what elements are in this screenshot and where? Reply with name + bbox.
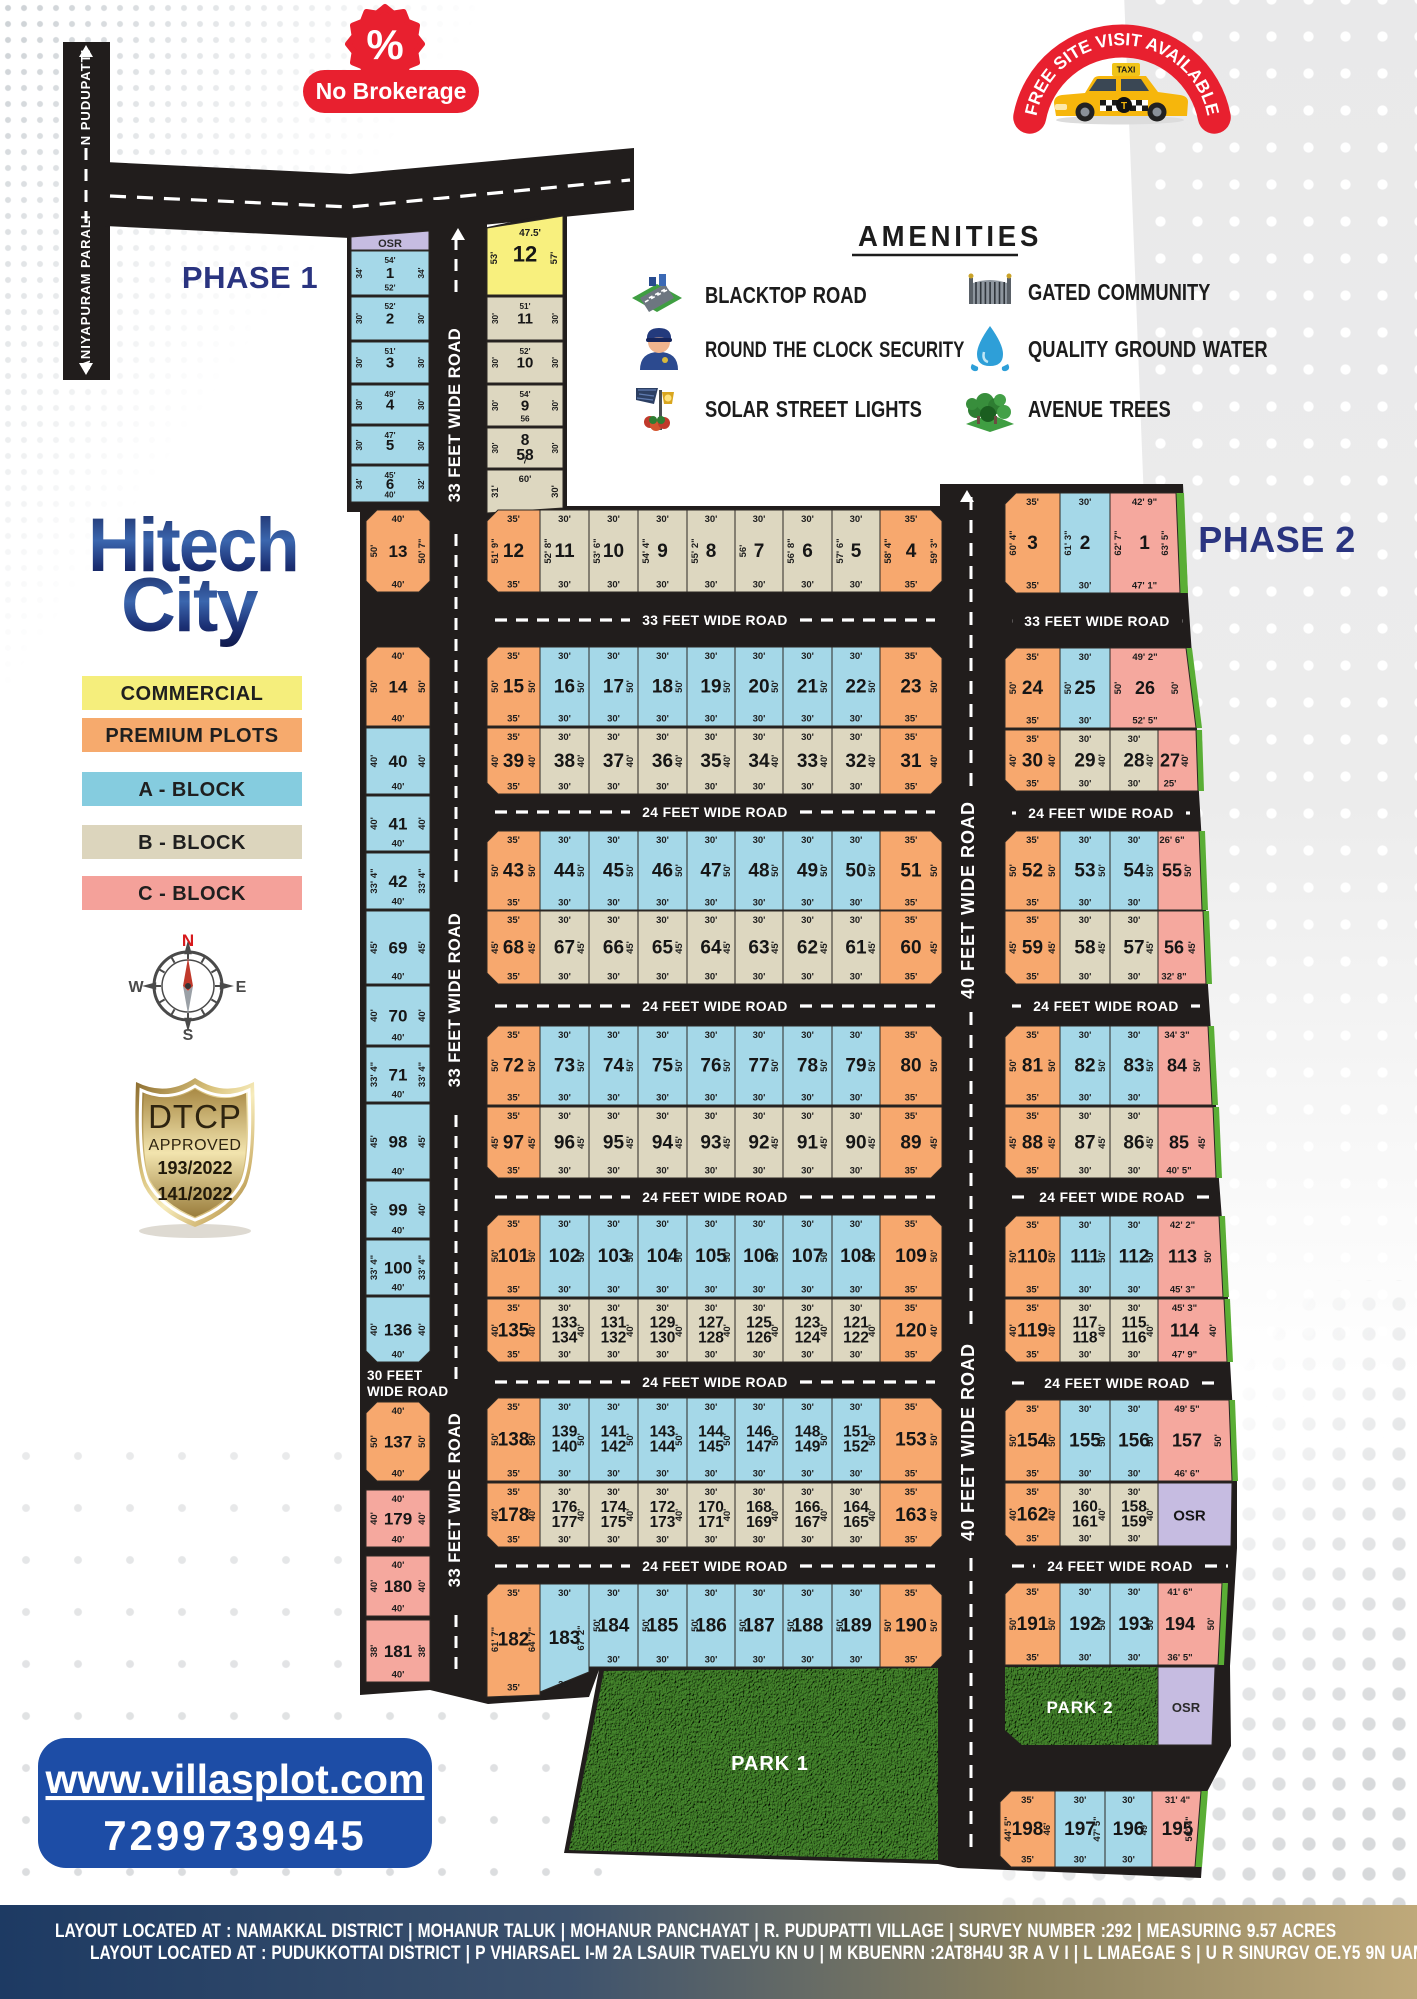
svg-text:30': 30' [705, 1111, 718, 1122]
svg-text:12: 12 [503, 541, 524, 562]
svg-text:40': 40' [1097, 1324, 1108, 1337]
svg-text:69: 69 [389, 939, 408, 958]
svg-text:PHASE 2: PHASE 2 [1198, 519, 1356, 560]
svg-text:30': 30' [656, 835, 669, 846]
svg-text:50': 50' [1145, 1434, 1156, 1447]
svg-text:30': 30' [850, 898, 863, 909]
svg-text:93: 93 [700, 1133, 721, 1154]
svg-text:30': 30' [801, 835, 814, 846]
svg-text:35': 35' [1026, 716, 1039, 727]
svg-text:35': 35' [905, 1350, 918, 1361]
svg-text:162: 162 [1017, 1505, 1049, 1526]
svg-text:4: 4 [386, 397, 395, 414]
svg-text:30': 30' [753, 1166, 766, 1177]
svg-text:30': 30' [558, 1487, 571, 1498]
svg-text:30: 30 [1022, 751, 1043, 772]
svg-text:54': 54' [519, 390, 530, 399]
svg-text:65: 65 [652, 938, 674, 959]
svg-text:20: 20 [748, 677, 769, 698]
svg-text:30': 30' [705, 1535, 718, 1546]
svg-text:89: 89 [900, 1133, 921, 1154]
svg-text:144: 144 [650, 1439, 676, 1456]
svg-text:OSR: OSR [1172, 1700, 1201, 1715]
svg-text:30': 30' [558, 651, 571, 662]
svg-text:43: 43 [503, 861, 524, 882]
svg-text:194: 194 [1165, 1614, 1195, 1634]
svg-text:30': 30' [607, 1402, 620, 1413]
svg-text:30': 30' [1122, 1795, 1135, 1806]
svg-text:52': 52' [519, 347, 530, 356]
svg-text:50': 50' [929, 1433, 940, 1446]
svg-text:33 FEET WIDE ROAD: 33 FEET WIDE ROAD [1024, 614, 1170, 629]
svg-text:62: 62 [797, 938, 818, 959]
svg-text:45': 45' [625, 941, 636, 954]
svg-text:92: 92 [748, 1133, 769, 1154]
svg-text:30': 30' [801, 651, 814, 662]
svg-text:AVENUE TREES: AVENUE TREES [1028, 397, 1171, 423]
svg-text:30': 30' [801, 580, 814, 591]
svg-text:33' 4": 33' 4" [417, 868, 428, 893]
svg-text:30': 30' [607, 651, 620, 662]
svg-text:100: 100 [384, 1259, 412, 1278]
svg-text:40': 40' [369, 1512, 380, 1525]
svg-text:159: 159 [1121, 1514, 1147, 1531]
svg-text:157: 157 [1172, 1431, 1202, 1451]
svg-text:40': 40' [1047, 1324, 1058, 1337]
svg-text:40': 40' [369, 1203, 380, 1216]
svg-text:30': 30' [1128, 1487, 1141, 1498]
svg-text:24 FEET WIDE ROAD: 24 FEET WIDE ROAD [642, 1559, 788, 1574]
svg-text:50': 50' [1097, 1059, 1108, 1072]
svg-text:40': 40' [770, 1509, 781, 1522]
svg-text:15: 15 [503, 677, 525, 698]
svg-text:30': 30' [801, 898, 814, 909]
svg-text:30': 30' [656, 1487, 669, 1498]
svg-text:30': 30' [753, 1588, 766, 1599]
svg-text:38': 38' [369, 1645, 380, 1658]
svg-text:City: City [121, 563, 258, 648]
svg-text:40': 40' [770, 1324, 781, 1337]
svg-text:190: 190 [895, 1616, 927, 1637]
svg-text:49: 49 [797, 861, 818, 882]
svg-text:71: 71 [389, 1066, 408, 1085]
svg-text:35': 35' [1026, 898, 1039, 909]
svg-text:30': 30' [1079, 1030, 1092, 1041]
svg-text:30': 30' [656, 1166, 669, 1177]
svg-text:179: 179 [384, 1510, 412, 1529]
svg-text:LAYOUT LOCATED AT : NAMAKKAL D: LAYOUT LOCATED AT : NAMAKKAL DISTRICT | … [55, 1920, 1336, 1942]
svg-text:40': 40' [1047, 754, 1058, 767]
svg-text:52: 52 [1022, 861, 1043, 882]
svg-text:30': 30' [850, 1588, 863, 1599]
svg-text:66: 66 [603, 938, 624, 959]
svg-text:35': 35' [507, 898, 520, 909]
svg-text:30': 30' [607, 1030, 620, 1041]
svg-text:40': 40' [392, 972, 405, 983]
svg-text:1: 1 [1139, 533, 1150, 554]
svg-text:35': 35' [507, 1683, 520, 1694]
svg-text:24 FEET WIDE ROAD: 24 FEET WIDE ROAD [1044, 1376, 1190, 1391]
svg-text:26' 6": 26' 6" [1159, 835, 1184, 846]
svg-text:40': 40' [392, 782, 405, 793]
svg-text:30': 30' [801, 514, 814, 525]
svg-text:40': 40' [392, 1283, 405, 1294]
svg-text:45' 3": 45' 3" [1170, 1285, 1195, 1296]
svg-text:110: 110 [1017, 1247, 1048, 1268]
svg-text:45': 45' [369, 1135, 380, 1148]
svg-text:30': 30' [705, 1285, 718, 1296]
svg-text:40': 40' [576, 1324, 587, 1337]
svg-text:TAXI: TAXI [1117, 65, 1136, 75]
svg-text:45': 45' [1008, 941, 1019, 954]
svg-text:35': 35' [905, 1303, 918, 1314]
svg-text:61' 7": 61' 7" [490, 1627, 501, 1652]
svg-text:30': 30' [1128, 1534, 1141, 1545]
svg-text:40': 40' [867, 755, 878, 768]
svg-text:50': 50' [674, 1059, 685, 1072]
svg-text:35': 35' [1026, 1587, 1039, 1598]
svg-text:30': 30' [705, 1402, 718, 1413]
svg-text:30': 30' [705, 1219, 718, 1230]
svg-text:35': 35' [507, 1535, 520, 1546]
svg-text:40': 40' [722, 1324, 733, 1337]
svg-text:30': 30' [1079, 1587, 1092, 1598]
svg-text:30': 30' [1079, 1487, 1092, 1498]
svg-text:30': 30' [801, 1655, 814, 1666]
svg-text:40': 40' [369, 1009, 380, 1022]
svg-text:45': 45' [929, 941, 940, 954]
svg-text:50’ 7": 50’ 7" [417, 538, 428, 563]
svg-text:40': 40' [392, 651, 405, 662]
svg-text:6: 6 [802, 541, 813, 562]
svg-text:152: 152 [843, 1439, 869, 1456]
svg-text:35': 35' [1021, 1855, 1034, 1866]
svg-text:54': 54' [384, 256, 395, 265]
svg-text:50': 50' [1063, 682, 1074, 695]
svg-text:24 FEET WIDE ROAD: 24 FEET WIDE ROAD [1047, 1559, 1193, 1574]
svg-text:30': 30' [1074, 1855, 1087, 1866]
svg-text:35': 35' [905, 732, 918, 743]
svg-text:40': 40' [1097, 754, 1108, 767]
svg-text:42' 9": 42' 9" [1132, 497, 1157, 508]
svg-text:77: 77 [748, 1056, 769, 1077]
svg-text:33 FEET WIDE ROAD: 33 FEET WIDE ROAD [642, 613, 788, 628]
svg-text:50': 50' [819, 680, 830, 693]
svg-text:40': 40' [369, 1323, 380, 1336]
svg-text:45': 45' [417, 1135, 428, 1148]
svg-text:90: 90 [845, 1133, 866, 1154]
svg-text:42' 2": 42' 2" [1170, 1220, 1195, 1231]
svg-text:50': 50' [929, 864, 940, 877]
svg-text:35': 35' [507, 580, 520, 591]
svg-text:50': 50' [1113, 682, 1124, 695]
svg-text:30': 30' [705, 1655, 718, 1666]
svg-text:30': 30' [558, 835, 571, 846]
svg-text:113: 113 [1168, 1247, 1197, 1267]
svg-text:30': 30' [753, 898, 766, 909]
svg-text:DTCP: DTCP [148, 1098, 242, 1135]
svg-text:N: N [182, 931, 194, 950]
svg-text:40': 40' [392, 1670, 405, 1681]
svg-text:50': 50' [527, 1250, 538, 1263]
svg-text:30': 30' [1079, 581, 1092, 592]
svg-text:QUALITY GROUND WATER: QUALITY GROUND WATER [1028, 337, 1268, 363]
svg-text:30': 30' [1079, 1404, 1092, 1415]
svg-text:30': 30' [705, 1469, 718, 1480]
svg-text:30': 30' [551, 442, 560, 453]
svg-text:30': 30' [801, 915, 814, 926]
svg-text:56: 56 [520, 415, 530, 424]
svg-text:40': 40' [1008, 754, 1019, 767]
svg-text:30': 30' [705, 782, 718, 793]
svg-text:30': 30' [491, 442, 500, 453]
svg-text:30': 30' [607, 732, 620, 743]
svg-text:30': 30' [801, 1303, 814, 1314]
svg-text:30': 30' [607, 1487, 620, 1498]
svg-text:30': 30' [850, 732, 863, 743]
svg-text:34: 34 [748, 751, 770, 772]
svg-text:www.villasplot.com: www.villasplot.com [45, 1756, 425, 1802]
svg-text:35': 35' [1026, 1469, 1039, 1480]
svg-text:WIDE ROAD: WIDE ROAD [367, 1384, 448, 1399]
svg-text:122: 122 [843, 1330, 869, 1347]
svg-text:30': 30' [656, 1535, 669, 1546]
svg-text:18: 18 [652, 677, 673, 698]
svg-text:44: 44 [554, 861, 576, 882]
svg-text:40': 40' [369, 817, 380, 830]
svg-text:35': 35' [905, 1285, 918, 1296]
svg-text:24 FEET WIDE ROAD: 24 FEET WIDE ROAD [642, 1190, 788, 1205]
svg-text:2: 2 [386, 311, 394, 328]
svg-text:30': 30' [607, 782, 620, 793]
svg-text:5: 5 [851, 541, 862, 562]
svg-text:50': 50' [625, 864, 636, 877]
svg-text:50': 50' [835, 1619, 846, 1632]
svg-text:17: 17 [603, 677, 624, 698]
svg-text:30': 30' [1128, 972, 1141, 983]
svg-text:45': 45' [576, 1136, 587, 1149]
svg-text:40': 40' [1097, 1508, 1108, 1521]
svg-text:50': 50' [1145, 1618, 1156, 1631]
svg-text:30': 30' [801, 1350, 814, 1361]
svg-text:50': 50' [625, 1059, 636, 1072]
svg-text:30': 30' [705, 915, 718, 926]
svg-text:B - BLOCK: B - BLOCK [138, 832, 246, 854]
svg-text:30': 30' [656, 1111, 669, 1122]
svg-text:4: 4 [906, 541, 917, 562]
svg-text:30': 30' [656, 1402, 669, 1413]
svg-text:30': 30' [607, 898, 620, 909]
svg-text:40': 40' [392, 714, 405, 725]
svg-text:30': 30' [753, 1350, 766, 1361]
svg-text:35': 35' [1026, 835, 1039, 846]
svg-text:47' 1": 47' 1" [1132, 581, 1157, 592]
svg-text:24 FEET WIDE ROAD: 24 FEET WIDE ROAD [642, 805, 788, 820]
svg-text:30': 30' [656, 782, 669, 793]
svg-text:30': 30' [801, 1588, 814, 1599]
svg-text:30': 30' [558, 580, 571, 591]
svg-text:35': 35' [1026, 1303, 1039, 1314]
svg-text:30': 30' [801, 714, 814, 725]
svg-text:124: 124 [795, 1330, 821, 1347]
svg-text:85: 85 [1169, 1133, 1189, 1153]
svg-text:99: 99 [389, 1201, 408, 1220]
svg-text:30': 30' [705, 732, 718, 743]
svg-text:45: 45 [603, 861, 625, 882]
svg-text:40': 40' [674, 1324, 685, 1337]
svg-text:50': 50' [490, 1250, 501, 1263]
svg-text:30': 30' [558, 1111, 571, 1122]
svg-text:180: 180 [384, 1577, 412, 1596]
svg-text:50': 50' [1008, 1250, 1019, 1263]
svg-text:50': 50' [722, 1250, 733, 1263]
svg-text:40': 40' [417, 1009, 428, 1022]
svg-text:35': 35' [507, 1469, 520, 1480]
svg-text:25': 25' [1164, 779, 1177, 790]
svg-text:30': 30' [558, 1535, 571, 1546]
svg-text:30': 30' [656, 1469, 669, 1480]
svg-text:50': 50' [1097, 864, 1108, 877]
svg-text:30': 30' [850, 1402, 863, 1413]
svg-text:40': 40' [1145, 754, 1156, 767]
svg-text:50': 50' [1047, 1059, 1058, 1072]
svg-text:11: 11 [517, 311, 533, 328]
svg-text:30': 30' [753, 651, 766, 662]
svg-text:30': 30' [607, 714, 620, 725]
svg-text:33: 33 [797, 751, 818, 772]
svg-text:50': 50' [722, 680, 733, 693]
svg-text:45': 45' [417, 941, 428, 954]
svg-text:23: 23 [900, 677, 921, 698]
svg-text:50': 50' [1047, 1434, 1058, 1447]
svg-text:50': 50' [1047, 1250, 1058, 1263]
svg-text:35': 35' [507, 651, 520, 662]
svg-text:E: E [236, 979, 247, 996]
svg-text:50': 50' [690, 1619, 701, 1632]
svg-text:86: 86 [1123, 1133, 1144, 1154]
svg-text:50': 50' [929, 1059, 940, 1072]
svg-text:50': 50' [819, 1059, 830, 1072]
svg-text:11: 11 [554, 541, 575, 562]
svg-text:50': 50' [527, 1433, 538, 1446]
svg-text:40': 40' [819, 1509, 830, 1522]
svg-text:50': 50' [1097, 1250, 1108, 1263]
svg-text:30': 30' [1128, 734, 1141, 745]
svg-text:30': 30' [656, 1093, 669, 1104]
svg-text:45': 45' [674, 941, 685, 954]
svg-text:50': 50' [867, 680, 878, 693]
svg-text:30': 30' [705, 1303, 718, 1314]
svg-text:30': 30' [558, 1166, 571, 1177]
svg-text:30': 30' [550, 485, 561, 498]
svg-text:30': 30' [355, 313, 364, 324]
svg-text:45': 45' [527, 1136, 538, 1149]
svg-text:16: 16 [554, 677, 575, 698]
svg-text:35': 35' [905, 1111, 918, 1122]
svg-text:30': 30' [705, 835, 718, 846]
svg-text:35': 35' [1026, 1111, 1039, 1122]
svg-text:24 FEET WIDE ROAD: 24 FEET WIDE ROAD [1028, 806, 1174, 821]
svg-text:OSR: OSR [378, 238, 402, 250]
svg-text:50': 50' [417, 680, 428, 693]
svg-text:52': 52' [384, 302, 395, 311]
svg-text:98: 98 [389, 1133, 408, 1152]
svg-text:30': 30' [355, 439, 364, 450]
svg-text:154: 154 [1017, 1431, 1049, 1452]
svg-text:35': 35' [905, 1093, 918, 1104]
svg-text:30': 30' [801, 1093, 814, 1104]
svg-text:30': 30' [1128, 898, 1141, 909]
svg-text:30': 30' [558, 732, 571, 743]
svg-text:94: 94 [652, 1133, 674, 1154]
svg-text:7: 7 [523, 457, 528, 466]
svg-text:64: 64 [700, 938, 722, 959]
svg-text:30': 30' [705, 1030, 718, 1041]
svg-text:2: 2 [1080, 533, 1091, 554]
svg-text:30': 30' [417, 357, 426, 368]
svg-text:47': 47' [384, 431, 395, 440]
svg-text:35': 35' [1026, 581, 1039, 592]
svg-text:PHASE 1: PHASE 1 [182, 260, 318, 295]
svg-text:30': 30' [1079, 1285, 1092, 1296]
svg-text:130: 130 [650, 1330, 676, 1347]
svg-text:40': 40' [392, 1469, 405, 1480]
svg-text:40': 40' [527, 755, 538, 768]
svg-text:30': 30' [558, 782, 571, 793]
svg-text:30': 30' [1074, 1795, 1087, 1806]
svg-text:1: 1 [386, 265, 394, 282]
svg-text:50': 50' [527, 1059, 538, 1072]
svg-text:182: 182 [498, 1630, 530, 1651]
svg-text:30': 30' [1079, 835, 1092, 846]
svg-text:73: 73 [554, 1056, 575, 1077]
svg-text:30': 30' [801, 1219, 814, 1230]
svg-text:50': 50' [490, 680, 501, 693]
svg-text:35': 35' [905, 972, 918, 983]
svg-text:30': 30' [850, 1469, 863, 1480]
svg-text:30': 30' [656, 1655, 669, 1666]
svg-text:30': 30' [607, 835, 620, 846]
svg-text:50': 50' [1047, 864, 1058, 877]
svg-text:39: 39 [503, 751, 524, 772]
svg-text:45': 45' [369, 941, 380, 954]
svg-text:45': 45' [490, 941, 501, 954]
svg-text:40': 40' [417, 1323, 428, 1336]
svg-text:30': 30' [1079, 734, 1092, 745]
svg-text:88: 88 [1022, 1133, 1043, 1154]
svg-text:BLACKTOP ROAD: BLACKTOP ROAD [705, 283, 867, 309]
svg-text:30': 30' [705, 714, 718, 725]
svg-text:63' 5": 63' 5" [1160, 530, 1171, 555]
svg-text:50': 50' [576, 1059, 587, 1072]
svg-text:35': 35' [507, 1111, 520, 1122]
svg-text:31: 31 [900, 751, 922, 772]
svg-text:49' 2": 49' 2" [1132, 652, 1157, 663]
svg-text:142: 142 [601, 1439, 627, 1456]
svg-text:50': 50' [1145, 1059, 1156, 1072]
svg-text:ROUND THE CLOCK SECURITY: ROUND THE CLOCK SECURITY [705, 338, 964, 363]
svg-text:30': 30' [850, 1303, 863, 1314]
svg-text:35': 35' [905, 580, 918, 591]
svg-text:29: 29 [1074, 751, 1095, 772]
svg-text:33' 4": 33' 4" [417, 1255, 428, 1280]
svg-text:36' 5": 36' 5" [1167, 1653, 1192, 1664]
svg-text:COMMERCIAL: COMMERCIAL [121, 683, 264, 705]
svg-text:35': 35' [507, 1350, 520, 1361]
svg-text:30': 30' [558, 915, 571, 926]
svg-text:%: % [366, 21, 403, 68]
svg-text:109: 109 [895, 1246, 927, 1267]
